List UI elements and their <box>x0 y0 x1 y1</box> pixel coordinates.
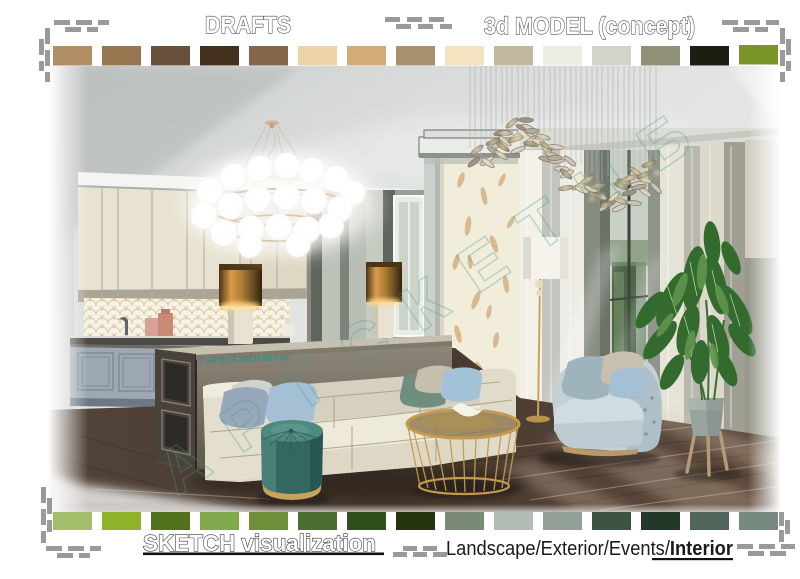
svg-text:SKETCH visualization: SKETCH visualization <box>143 530 376 556</box>
svg-text:3d MODEL (concept): 3d MODEL (concept) <box>484 13 695 40</box>
svg-text:Landscape/Exterior/Events/Inte: Landscape/Exterior/Events/Interior <box>446 538 733 560</box>
svg-text:DRAFTS: DRAFTS <box>205 12 291 39</box>
